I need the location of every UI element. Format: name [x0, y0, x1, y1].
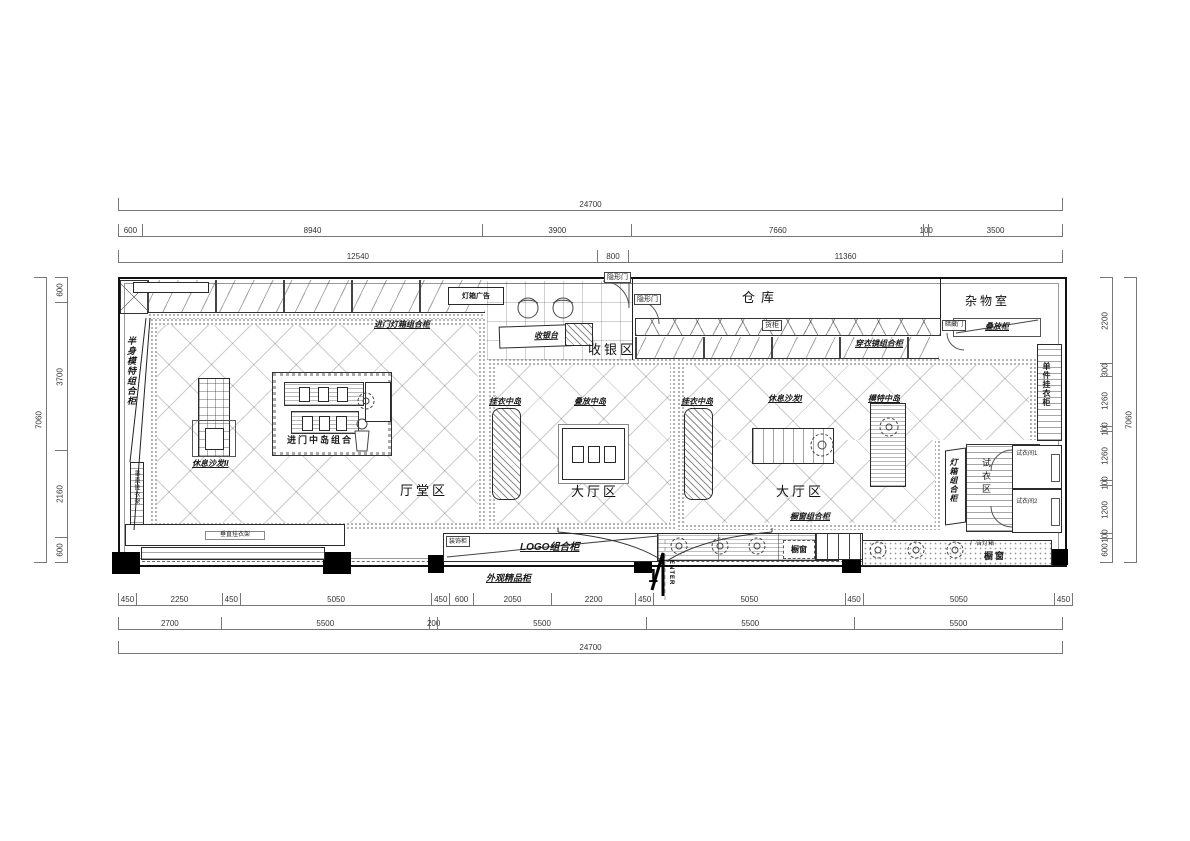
entry-lightbox-cabinet-label: 进门灯箱组合柜: [374, 320, 430, 330]
dim-value: 450: [121, 595, 134, 604]
dim-left: 60037002160600: [55, 277, 68, 563]
hall-area-label: 厅堂区: [400, 484, 448, 498]
dim-segment: 2250: [136, 593, 222, 606]
dim-segment: 5500: [854, 617, 1062, 630]
dim-value: 7660: [769, 226, 787, 235]
dim-segment: 7660: [631, 224, 923, 237]
dim-value: 3500: [987, 226, 1005, 235]
chair-icons: [518, 298, 573, 318]
main-center-label: 大厅区: [571, 485, 619, 499]
entry-island-flower: [358, 393, 374, 409]
dim-segment: 5500: [221, 617, 429, 630]
dim-value: 2200: [585, 595, 603, 604]
dim-segment: 1200: [1100, 485, 1113, 533]
hang-island1-label: 挂衣中岛: [489, 397, 521, 407]
mannequin-icons: [358, 393, 963, 558]
entry-island-label: 进门中岛组合: [287, 435, 353, 445]
dim-segment: 600: [118, 224, 142, 237]
dim-value: 3900: [548, 226, 566, 235]
mannequin-island-label: 模特中岛: [868, 394, 900, 404]
dim-segment: 3500: [928, 224, 1062, 237]
half-mannequin-label: 半身模特组合柜: [125, 336, 138, 406]
dim-segment: 3700: [55, 302, 68, 450]
logo-combo-label: LOGO组合柜: [520, 538, 579, 553]
dim-segment: 450: [431, 593, 449, 606]
dim-value: 1260: [1101, 447, 1110, 465]
dim-value: 2200: [1101, 312, 1110, 330]
mirror-combo-label: 穿衣镜组合柜: [855, 339, 903, 349]
dim-segment: 3900: [482, 224, 631, 237]
stack-island-label: 叠放中岛: [574, 397, 606, 407]
dim-bottom-row2: 27005500200550055005500: [118, 617, 1063, 630]
dim-value: 5500: [949, 619, 967, 628]
dim-value: 600: [455, 595, 468, 604]
dim-segment: 5050: [240, 593, 431, 606]
dim-segment: 200: [429, 617, 438, 630]
dim-value: 600: [56, 543, 65, 556]
dim-value: 7060: [35, 411, 44, 429]
dim-segment: 7060: [34, 277, 47, 562]
concealed-door-arc: [947, 333, 964, 350]
dim-value: 600: [1101, 544, 1110, 557]
fitting-room2-label: 试衣间2: [1016, 499, 1037, 506]
fitting-door-arcs: [991, 450, 1012, 527]
exterior-boutique-label: 外观精品柜: [486, 573, 531, 583]
dim-top-row3: 1254080011360: [118, 250, 1063, 263]
dim-value: 5500: [316, 619, 334, 628]
dim-top-total: 24700: [118, 198, 1063, 211]
dim-left-total: 7060: [34, 277, 47, 563]
cashier-area-label: 收银区: [588, 343, 636, 357]
dim-value: 11360: [835, 252, 857, 261]
dim-value: 1260: [1101, 392, 1110, 410]
single-hang-label: 单件挂衣柜: [1041, 362, 1052, 407]
hang-island2-label: 挂衣中岛: [681, 397, 713, 407]
dim-value: 2700: [161, 619, 179, 628]
lightbox-combo-label: 灯箱组合柜: [948, 458, 959, 503]
dim-value: 1200: [1101, 501, 1110, 519]
dim-segment: 1260: [1100, 431, 1113, 481]
dim-segment: 5050: [653, 593, 844, 606]
dim-segment: 11360: [628, 250, 1062, 263]
dim-value: 3700: [56, 368, 65, 386]
sofa1-label: 休息沙发I: [768, 394, 802, 404]
dim-segment: 5500: [646, 617, 854, 630]
dim-segment: 600: [449, 593, 473, 606]
enter-text: ENTER: [668, 560, 674, 585]
dim-value: 2250: [170, 595, 188, 604]
dim-segment: 24700: [118, 198, 1062, 211]
dim-segment: 800: [597, 250, 628, 263]
dim-right: 2200300126010012601001200100600: [1100, 277, 1113, 563]
dim-segment: 450: [845, 593, 863, 606]
mannequin-island-flower: [880, 418, 898, 436]
dim-value: 600: [124, 226, 137, 235]
dim-value: 2050: [504, 595, 522, 604]
dim-value: 7060: [1125, 411, 1134, 429]
sofa1-flower: [811, 434, 833, 456]
hidden-door1-label: 隐形门: [604, 272, 631, 283]
dim-value: 450: [638, 595, 651, 604]
dim-bottom-row1: 4502250450505045060020502200450505045050…: [118, 593, 1073, 606]
dim-value: 24700: [579, 200, 601, 209]
dim-segment: 450: [1054, 593, 1072, 606]
dim-value: 5050: [950, 595, 968, 604]
dim-value: 24700: [579, 643, 601, 652]
dim-segment: 12540: [118, 250, 597, 263]
dim-value: 2160: [56, 485, 65, 503]
dim-segment: 450: [118, 593, 136, 606]
sofa2-label: 休息沙发II: [192, 459, 228, 469]
dim-segment: 1260: [1100, 376, 1113, 426]
dim-segment: 450: [222, 593, 240, 606]
plan-linework: [0, 0, 1190, 841]
dim-value: 800: [606, 252, 619, 261]
dim-segment: 2200: [1100, 277, 1113, 363]
dim-segment: 7060: [1124, 277, 1137, 562]
dim-segment: 2050: [473, 593, 551, 606]
dim-value: 5050: [740, 595, 758, 604]
dim-bottom-total: 24700: [118, 641, 1063, 654]
dim-value: 300: [1101, 363, 1110, 376]
fitting-room1-label: 试衣间1: [1016, 451, 1037, 458]
fitting-area-label: 试衣区: [980, 458, 993, 497]
dim-segment: 8940: [142, 224, 483, 237]
dim-segment: 24700: [118, 641, 1062, 654]
concealed-door-label: 暗藏门: [942, 320, 966, 331]
floor-plan-page: { "plan": { "areas": { "hall": "厅堂区", "c…: [0, 0, 1190, 841]
dim-value: 450: [1057, 595, 1070, 604]
dim-segment: 2160: [55, 450, 68, 537]
dim-segment: 2200: [551, 593, 635, 606]
person-icon: [355, 419, 369, 451]
dim-segment: 600: [55, 537, 68, 562]
dim-value: 450: [847, 595, 860, 604]
entrance-number: 1: [648, 566, 658, 587]
dim-top-row2: 6008940390076601003500: [118, 224, 1063, 237]
dim-value: 12540: [347, 252, 369, 261]
window2-mannequins: [870, 542, 963, 558]
dim-right-total: 7060: [1124, 277, 1137, 563]
dim-segment: 5500: [437, 617, 645, 630]
dim-value: 5500: [533, 619, 551, 628]
dim-segment: 2700: [118, 617, 221, 630]
dim-segment: 600: [1100, 538, 1113, 562]
stack-cabinet-label: 叠放柜: [985, 322, 1009, 332]
dim-segment: 600: [55, 277, 68, 302]
dim-segment: 300: [1100, 363, 1113, 376]
dim-segment: 450: [635, 593, 653, 606]
main-right-label: 大厅区: [776, 485, 824, 499]
window-combo-label: 橱窗组合柜: [790, 512, 830, 522]
dim-value: 450: [225, 595, 238, 604]
dim-value: 450: [434, 595, 447, 604]
storage-label: 杂物室: [965, 294, 1010, 308]
dim-segment: 5050: [863, 593, 1054, 606]
warehouse-label: 仓库: [742, 291, 780, 305]
dim-value: 8940: [304, 226, 322, 235]
dim-value: 5050: [327, 595, 345, 604]
hidden-door2-label: 隐形门: [634, 294, 661, 305]
dim-value: 600: [56, 283, 65, 296]
dim-value: 5500: [741, 619, 759, 628]
